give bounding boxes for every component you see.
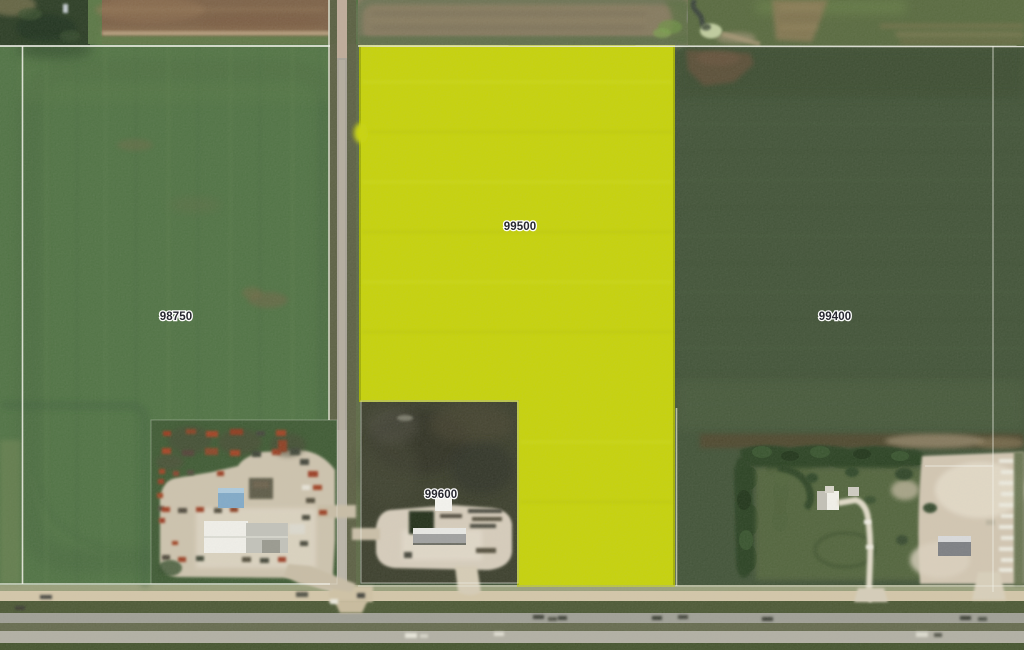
svg-text:99400: 99400 <box>819 311 851 323</box>
svg-text:99500: 99500 <box>504 221 536 233</box>
svg-text:99600: 99600 <box>425 489 457 501</box>
svg-text:98750: 98750 <box>160 311 192 323</box>
